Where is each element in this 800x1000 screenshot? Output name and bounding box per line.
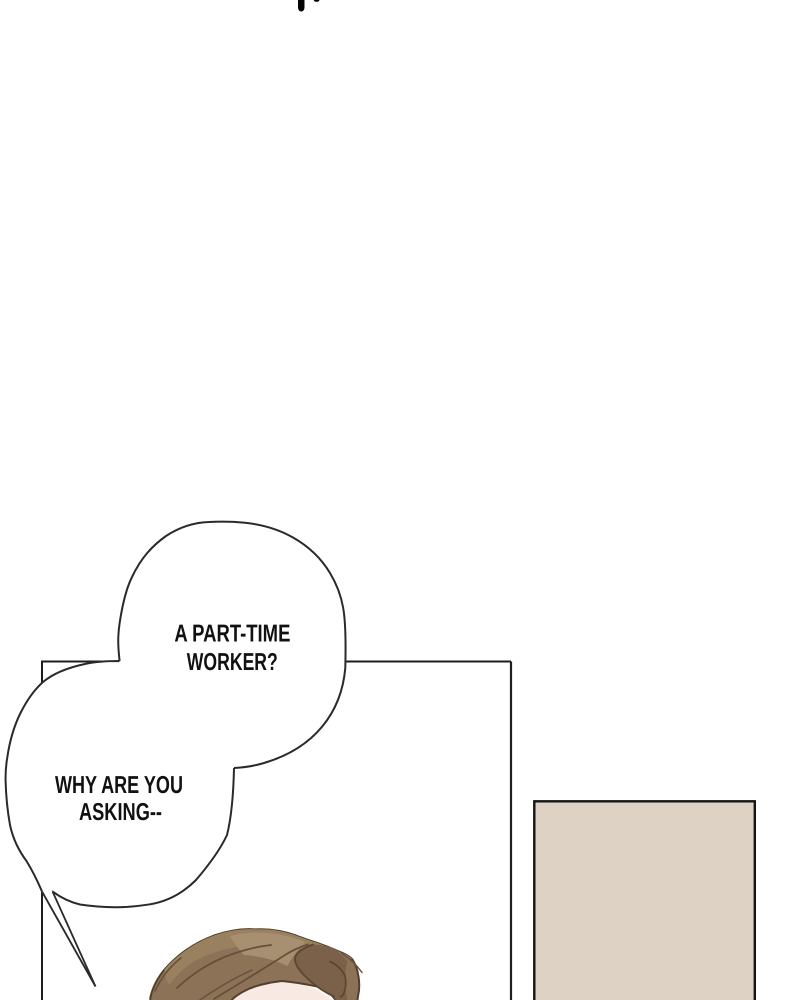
svg-text:A PART-TIME: A PART-TIME — [174, 621, 290, 648]
svg-text:ASKING--: ASKING-- — [79, 799, 162, 826]
svg-text:WORKER?: WORKER? — [187, 649, 278, 676]
svg-text:WHY ARE YOU: WHY ARE YOU — [55, 772, 183, 799]
